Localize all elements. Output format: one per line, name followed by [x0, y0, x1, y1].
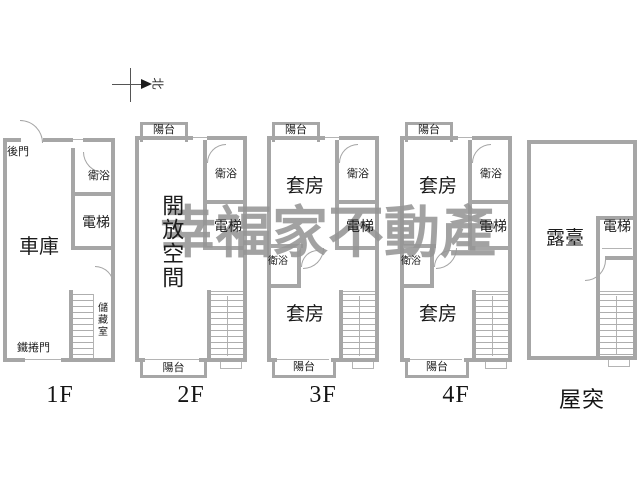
stairs	[343, 294, 375, 358]
room-label-balcony-top: 陽台	[272, 124, 320, 137]
floorplan-canvas: 幸福家不動產 北 後門 衛浴 電梯 車庫 儲藏室 鐵捲門 1F 陽台 衛浴 電梯…	[0, 0, 640, 480]
room-label-garage: 車庫	[15, 236, 63, 259]
door-arc	[339, 144, 358, 163]
wall-segment	[61, 358, 115, 362]
floor-label-1f: 1F	[3, 382, 117, 409]
room-label-bath-top: 衛浴	[341, 168, 375, 181]
room-label-bath: 衛浴	[83, 170, 115, 183]
opening-line	[277, 359, 329, 360]
floor-plan-2f: 陽台 衛浴 電梯 開放空間 陽台 2F	[135, 104, 247, 424]
wall-segment	[3, 138, 7, 362]
compass-vertical-line	[130, 68, 131, 102]
floor-label-3f: 3F	[267, 382, 379, 409]
floor-plan-3f: 陽台 套房 衛浴 電梯 衛浴 套房 陽台 3F	[267, 104, 379, 424]
room-label-balcony-bottom: 陽台	[140, 362, 207, 375]
wall-segment	[527, 356, 637, 360]
opening-line	[25, 359, 61, 360]
wall-segment	[207, 290, 211, 358]
wall-segment	[140, 375, 207, 378]
opening-line	[93, 294, 94, 358]
wall-segment	[400, 284, 434, 288]
room-label-balcony-bottom: 陽台	[272, 361, 336, 374]
room-label-suite-bottom: 套房	[408, 304, 468, 326]
opening-line	[458, 137, 472, 138]
opening-line	[325, 137, 339, 138]
room-label-elevator: 電梯	[79, 216, 113, 232]
opening-line	[193, 137, 207, 138]
floor-plan-roof: 露臺 電梯 屋突	[527, 104, 637, 424]
door-arc	[207, 144, 226, 163]
wall-segment	[71, 148, 75, 250]
opening-line	[476, 291, 508, 292]
room-label-suite-top: 套房	[408, 176, 468, 198]
door-arc	[20, 120, 43, 143]
room-label-storage: 儲藏室	[95, 302, 107, 360]
room-label-bath-mid: 衛浴	[268, 256, 288, 268]
wall-segment	[339, 136, 379, 140]
wall-segment	[527, 140, 637, 144]
room-label-balcony-top: 陽台	[140, 124, 188, 137]
wall-segment	[472, 290, 476, 358]
wall-segment	[69, 290, 73, 358]
stairs	[73, 294, 93, 358]
room-label-suite-top: 套房	[275, 176, 335, 198]
room-label-elevator: 電梯	[211, 220, 245, 236]
opening-line	[410, 359, 462, 360]
room-label-back-door: 後門	[7, 146, 29, 159]
stair-landing	[608, 360, 630, 367]
stairs	[600, 294, 633, 356]
room-label-rolling-door: 鐵捲門	[17, 342, 50, 355]
wall-segment	[135, 136, 139, 362]
room-label-bath-top: 衛浴	[474, 168, 508, 181]
stairs	[211, 294, 243, 358]
wall-segment	[3, 358, 25, 362]
floor-plan-1f: 後門 衛浴 電梯 車庫 儲藏室 鐵捲門 1F	[3, 104, 117, 424]
opening-line	[343, 291, 375, 292]
stair-landing	[220, 362, 242, 369]
wall-segment	[633, 140, 637, 360]
stair-landing	[485, 362, 507, 369]
floor-plan-4f: 陽台 套房 衛浴 電梯 衛浴 套房 陽台 4F	[400, 104, 512, 424]
compass-horizontal-line	[112, 84, 143, 85]
wall-segment	[71, 246, 115, 250]
room-label-elevator: 電梯	[476, 220, 510, 236]
stairs	[476, 294, 508, 358]
room-label-balcony-top: 陽台	[405, 124, 453, 137]
wall-segment	[207, 136, 247, 140]
compass: 北	[108, 64, 168, 106]
room-label-elevator: 電梯	[599, 220, 635, 236]
compass-north-label: 北	[150, 77, 167, 89]
room-label-terrace: 露臺	[533, 228, 597, 250]
opening-line	[602, 248, 632, 249]
room-label-suite-bottom: 套房	[275, 304, 335, 326]
floor-label-4f: 4F	[400, 382, 512, 409]
wall-segment	[267, 284, 301, 288]
wall-segment	[71, 192, 115, 196]
opening-line	[600, 291, 633, 292]
opening-line	[145, 359, 199, 360]
floor-label-2f: 2F	[135, 382, 247, 409]
room-label-bath-mid: 衛浴	[401, 256, 421, 268]
room-label-open-space: 開放空間	[159, 194, 184, 310]
wall-segment	[43, 138, 73, 142]
room-label-elevator: 電梯	[343, 220, 377, 236]
wall-segment	[339, 290, 343, 358]
room-label-balcony-bottom: 陽台	[405, 361, 469, 374]
wall-segment	[405, 375, 469, 378]
floor-label-roof: 屋突	[527, 382, 637, 414]
door-arc	[472, 144, 491, 163]
wall-segment	[472, 136, 512, 140]
wall-segment	[605, 256, 637, 260]
wall-segment	[527, 140, 531, 360]
room-label-bath: 衛浴	[209, 168, 243, 181]
wall-segment	[464, 358, 512, 362]
opening-line	[211, 291, 243, 292]
wall-segment	[272, 375, 336, 378]
stair-landing	[352, 362, 374, 369]
wall-segment	[331, 358, 379, 362]
